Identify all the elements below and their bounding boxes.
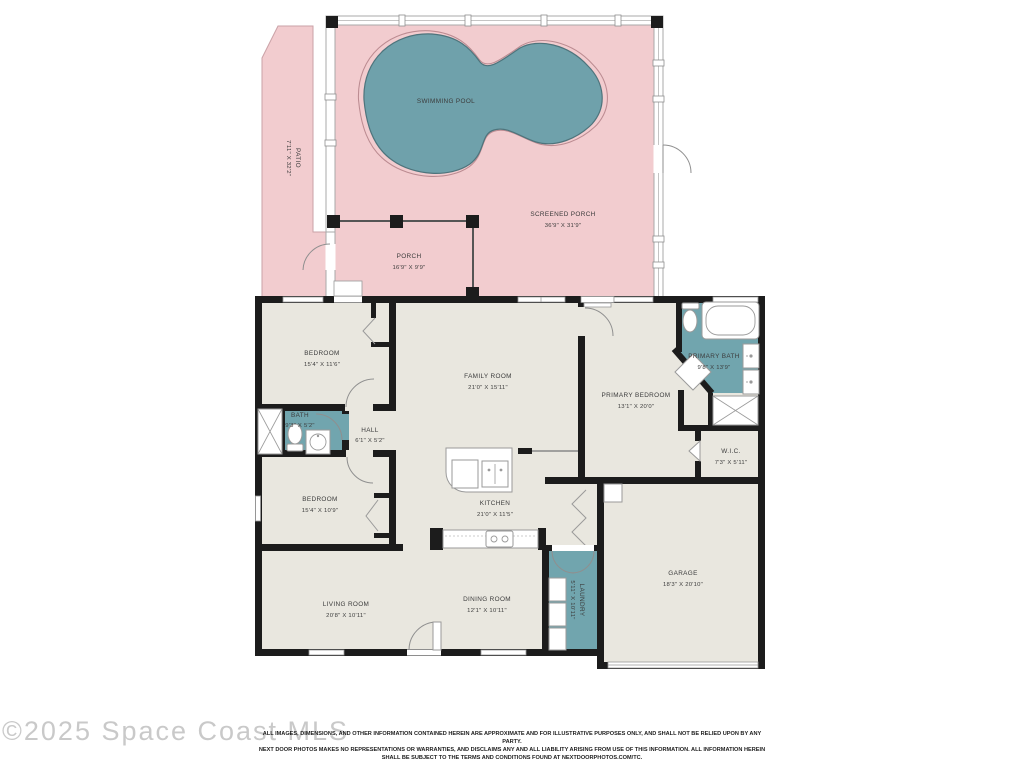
primary-bath-dims: 9'8" X 13'9" <box>697 365 730 371</box>
exterior-wall-top <box>255 296 765 303</box>
wall-bedroom2-bottom <box>255 544 403 551</box>
garage-wall-left <box>597 483 604 669</box>
hall-dims: 6'1" X 5'2" <box>355 438 385 444</box>
dryer-icon <box>549 603 566 626</box>
stove-icon <box>486 531 513 547</box>
wall-primary-bath-left <box>676 300 682 352</box>
porch-corner-post <box>326 16 338 28</box>
porch-post <box>390 215 403 228</box>
faucet-dot <box>317 435 319 437</box>
screen-tick <box>653 262 664 268</box>
disclaimer-line-3: SHALL BE SUBJECT TO THE TERMS AND CONDIT… <box>253 754 771 762</box>
bedroom2-door-gap <box>346 450 373 457</box>
window <box>256 496 261 521</box>
garage-label: GARAGE <box>668 570 697 577</box>
wall-shower-left <box>708 393 713 427</box>
dishwasher-icon <box>452 460 478 488</box>
primary-bedroom-dims: 13'1" X 20'0" <box>618 404 655 410</box>
garage-dims: 18'3" X 20'10" <box>663 582 703 588</box>
toilet-icon <box>683 310 697 332</box>
kitchen-dims: 21'0" X 11'5" <box>477 512 513 518</box>
patio-dims: 7'11" X 32'2" <box>285 140 291 176</box>
bedroom2-label: BEDROOM <box>302 496 337 503</box>
porch-label: PORCH <box>397 253 422 260</box>
window <box>309 650 344 655</box>
window <box>713 297 758 302</box>
wall-closet2-top <box>374 493 391 498</box>
wall-below-diagonal <box>678 390 684 431</box>
screen-tick <box>325 94 336 100</box>
entry-step <box>334 281 362 296</box>
primary-slider-gap <box>581 297 614 303</box>
front-door-leaf <box>433 622 441 650</box>
patio-door-gap <box>326 244 336 270</box>
wall-wic-top <box>678 425 765 431</box>
porch-door-gap <box>654 145 664 173</box>
entry-door-gap <box>334 297 362 303</box>
screen-tick <box>653 96 664 102</box>
patio-label: PATIO <box>294 148 301 168</box>
window <box>614 297 653 302</box>
screen-tick <box>653 60 664 66</box>
primary-bedroom-label: PRIMARY BEDROOM <box>602 392 671 399</box>
screened-porch-label: SCREENED PORCH <box>530 211 595 218</box>
porch-corner-post <box>651 16 663 28</box>
dining-room-dims: 12'1" X 10'11" <box>467 608 507 614</box>
toilet-tank <box>287 444 303 451</box>
screen-tick <box>465 15 471 26</box>
screen-wall-left-upper <box>326 16 335 232</box>
wall-laundry-left <box>542 548 549 649</box>
disclaimer-line-1: ALL IMAGES, DIMENSIONS, AND OTHER INFORM… <box>253 730 771 746</box>
laundry-sink-icon <box>549 628 566 650</box>
dining-room-label: DINING ROOM <box>463 596 511 603</box>
exterior-wall-left <box>255 296 262 656</box>
screen-tick <box>653 236 664 242</box>
sink-faucet-dot <box>488 469 491 472</box>
bedroom1-dims: 15'4" X 11'6" <box>304 362 340 368</box>
laundry-label: LAUNDRY <box>578 584 585 617</box>
laundry-door-gap <box>552 545 594 551</box>
washer-icon <box>549 578 566 601</box>
laundry-dims: 5'11" X 10'11" <box>569 580 575 619</box>
screen-tick <box>615 15 621 26</box>
bedroom1-label: BEDROOM <box>304 350 339 357</box>
window <box>481 650 526 655</box>
sliding-door <box>518 297 565 302</box>
floor-plan-drawing: SWIMMING POOL PATIO 7'11" X 32'2" SCREEN… <box>0 0 1024 768</box>
wic-dims: 7'3" X 5'11" <box>715 460 748 466</box>
window <box>283 297 323 302</box>
swimming-pool-label: SWIMMING POOL <box>417 98 475 105</box>
wall-closet1 <box>371 300 376 318</box>
wall-closet2-bottom <box>374 533 391 538</box>
primary-door-gap <box>578 307 585 336</box>
porch-post <box>327 215 340 228</box>
screen-tick <box>325 140 336 146</box>
toilet-tank <box>682 303 699 309</box>
porch-dims: 16'9" X 9'9" <box>392 265 425 271</box>
screen-tick <box>399 15 405 26</box>
floor-plan-page: SWIMMING POOL PATIO 7'11" X 32'2" SCREEN… <box>0 0 1024 768</box>
wic-label: W.I.C. <box>721 448 741 455</box>
screen-tick <box>541 15 547 26</box>
sink-faucet-dot <box>500 469 503 472</box>
screened-porch-dims: 36'9" X 31'9" <box>545 223 582 229</box>
hall-label: HALL <box>361 427 378 434</box>
disclaimer-text: ALL IMAGES, DIMENSIONS, AND OTHER INFORM… <box>253 730 771 762</box>
water-heater-icon <box>604 484 622 502</box>
bathtub-icon <box>702 302 759 339</box>
primary-bath-label: PRIMARY BATH <box>688 353 739 360</box>
primary-slider-leaf <box>584 303 611 307</box>
porch-door-swing <box>663 145 691 173</box>
bath-door-gap <box>342 414 349 440</box>
bedroom1-door-gap <box>345 404 373 411</box>
bath-label: BATH <box>291 412 309 419</box>
bath-dims: 9'3" X 5'2" <box>285 423 315 429</box>
living-room-label: LIVING ROOM <box>323 601 369 608</box>
family-room-dims: 21'0" X 15'11" <box>468 385 508 391</box>
living-room-dims: 20'8" X 10'11" <box>326 613 366 619</box>
kitchen-label: KITCHEN <box>480 500 511 507</box>
family-room-label: FAMILY ROOM <box>464 373 512 380</box>
bedroom2-dims: 15'4" X 10'9" <box>302 508 339 514</box>
wall-kitchen-stub <box>518 448 532 454</box>
faucet-dot <box>749 380 752 383</box>
porch-post <box>466 215 479 228</box>
wall-bedroom1-family <box>389 300 396 410</box>
disclaimer-line-2: NEXT DOOR PHOTOS MAKES NO REPRESENTATION… <box>253 746 771 754</box>
wall-counter-stub-left <box>430 528 443 550</box>
faucet-dot <box>749 354 752 357</box>
wall-counter-stub-right <box>538 528 546 550</box>
